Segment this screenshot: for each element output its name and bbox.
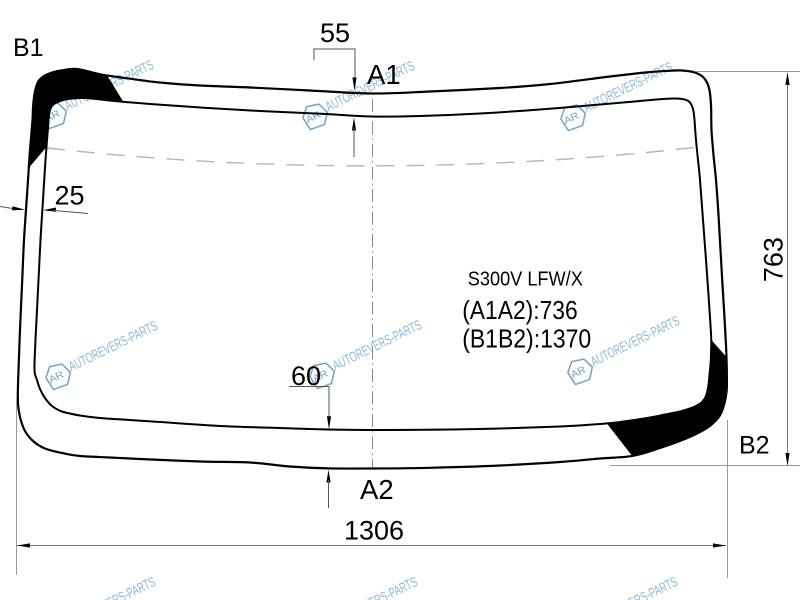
svg-text:763: 763 (759, 237, 789, 282)
svg-text:25: 25 (55, 181, 85, 211)
svg-text:A2: A2 (360, 474, 394, 505)
svg-text:B1: B1 (13, 34, 44, 62)
svg-text:S300V LFW/X: S300V LFW/X (468, 269, 583, 291)
svg-text:55: 55 (320, 18, 350, 48)
svg-text:(B1B2):1370: (B1B2):1370 (462, 324, 591, 354)
svg-text:1306: 1306 (344, 516, 404, 546)
svg-text:(A1A2):736: (A1A2):736 (462, 295, 578, 325)
svg-text:A1: A1 (367, 59, 401, 90)
svg-text:B2: B2 (739, 432, 770, 460)
